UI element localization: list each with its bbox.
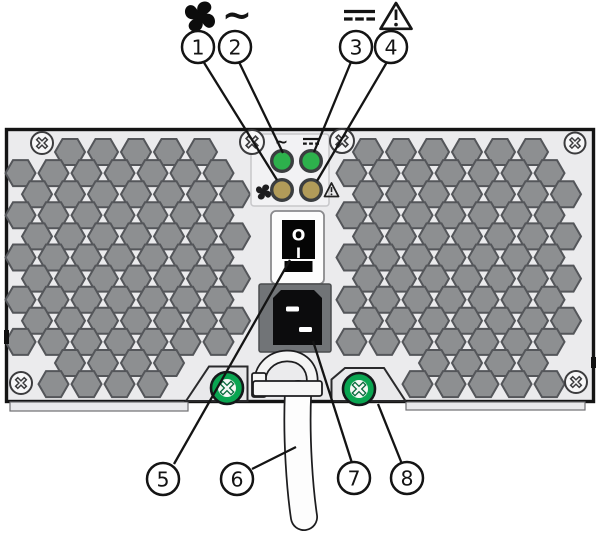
screw-icon [10, 372, 32, 394]
edge-notch-right [591, 357, 596, 368]
fan-status-led [272, 180, 293, 201]
hex-vent-hole [370, 329, 400, 355]
fan-icon-small [256, 185, 271, 200]
callout-1: 1 [182, 31, 214, 63]
switch-off-marking: O [292, 226, 306, 245]
power-switch: O I [271, 211, 324, 284]
fault-led [301, 180, 322, 201]
dc-symbol [344, 12, 375, 20]
screw-icon [565, 371, 587, 393]
callout-8: 8 [391, 462, 423, 494]
svg-text:6: 6 [230, 468, 243, 492]
hex-vent-hole [337, 329, 367, 355]
inlet-pin-slot-top [286, 307, 299, 312]
bottom-lip-left [10, 402, 188, 411]
hex-vent-hole [105, 371, 135, 397]
legend: ~ [185, 0, 411, 36]
cable-strap [297, 394, 304, 517]
warning-icon [381, 3, 412, 29]
hex-vent-hole [138, 371, 168, 397]
hex-vent-hole [535, 371, 565, 397]
svg-text:7: 7 [347, 467, 360, 491]
thumbscrew-right [343, 373, 375, 405]
callout-5: 5 [147, 463, 179, 495]
callout-2: 2 [219, 31, 251, 63]
svg-text:5: 5 [156, 468, 169, 492]
hex-vent-hole [436, 371, 466, 397]
diagram-svg: ~ O I [0, 0, 600, 539]
hex-vent-hole [403, 371, 433, 397]
psu-rear-diagram: ~ O I [0, 0, 600, 539]
retainer-clamp-bar [253, 381, 322, 396]
callout-4: 4 [375, 31, 407, 63]
callout-3: 3 [340, 31, 372, 63]
switch-on-marking: I [296, 246, 301, 262]
screw-icon [31, 132, 53, 154]
bottom-lip-right [406, 402, 585, 410]
callout-7: 7 [338, 462, 370, 494]
svg-text:3: 3 [349, 36, 362, 60]
hex-vent-hole [39, 371, 69, 397]
ac-ok-led [272, 151, 293, 172]
thumbscrew-left [211, 372, 243, 404]
hex-vent-hole [72, 371, 102, 397]
hex-vent-hole [6, 329, 36, 355]
hex-vent-hole [469, 371, 499, 397]
screw-icon [565, 133, 586, 154]
callout-6: 6 [221, 463, 253, 495]
hex-vent-hole [204, 329, 234, 355]
svg-text:4: 4 [384, 36, 397, 60]
cable-retainer [252, 356, 322, 517]
inlet-pin-slot-mid [299, 327, 312, 332]
hex-vent-hole [502, 371, 532, 397]
svg-text:2: 2 [228, 36, 241, 60]
fan-icon [185, 2, 215, 32]
svg-text:1: 1 [191, 36, 204, 60]
screw-icon [240, 130, 264, 154]
svg-text:8: 8 [400, 467, 413, 491]
dc-ok-led [301, 151, 322, 172]
inlet-socket [273, 290, 322, 345]
leader-line-8 [378, 404, 402, 464]
screw-icon [330, 129, 354, 153]
edge-notch-left [4, 330, 9, 344]
